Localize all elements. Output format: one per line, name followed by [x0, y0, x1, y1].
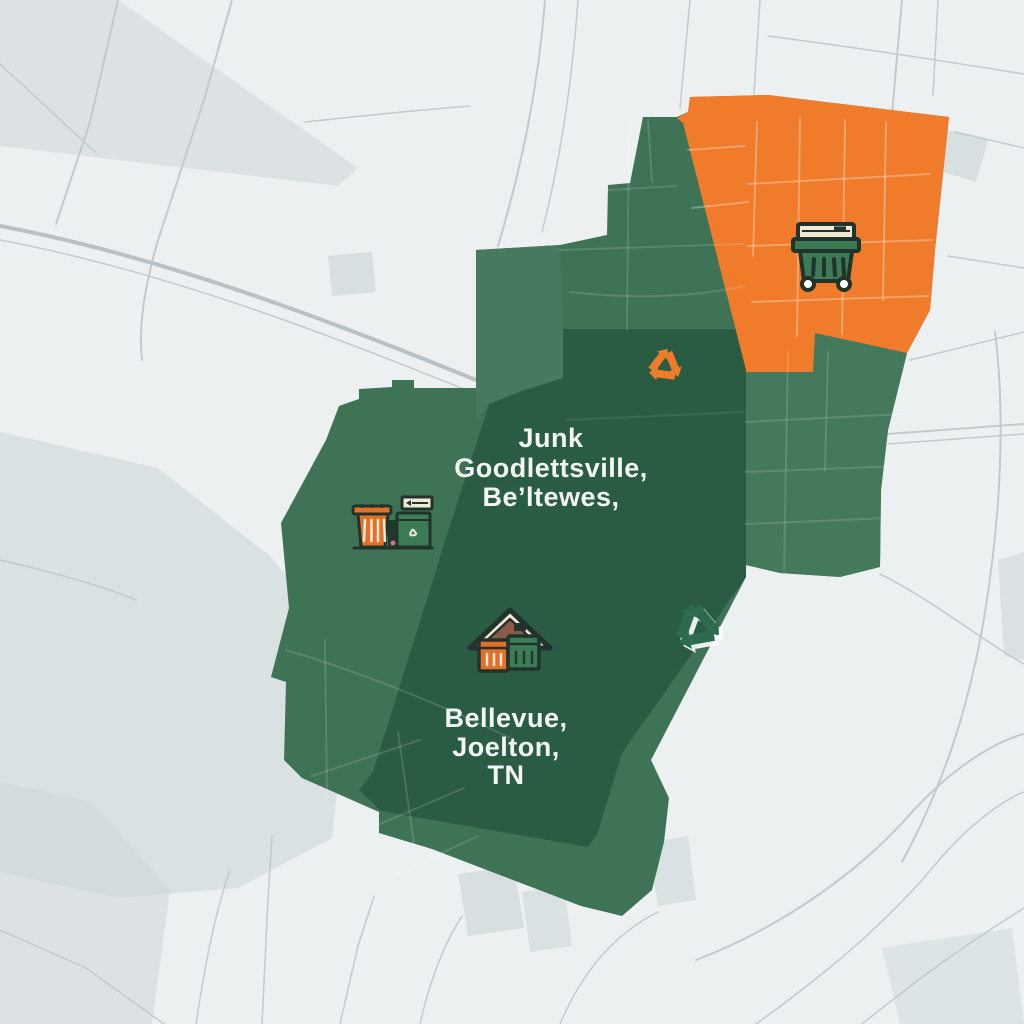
north-label-line1: Junk: [518, 423, 584, 453]
green-dumpster-icon: [793, 224, 859, 290]
map-illustration: Junk Goodlettsville, Be’ltewes, Bellevue…: [0, 0, 1024, 1024]
south-label-line3: TN: [488, 760, 525, 790]
south-label-line2: Joelton,: [452, 732, 560, 762]
green-dumpster-with-sign-icon: [397, 497, 432, 547]
map-canvas: Junk Goodlettsville, Be’ltewes, Bellevue…: [0, 0, 1024, 1024]
north-label-line3: Be’ltewes,: [482, 482, 619, 512]
north-label-line2: Goodlettsville,: [454, 453, 648, 483]
south-label-line1: Bellevue,: [444, 703, 567, 733]
